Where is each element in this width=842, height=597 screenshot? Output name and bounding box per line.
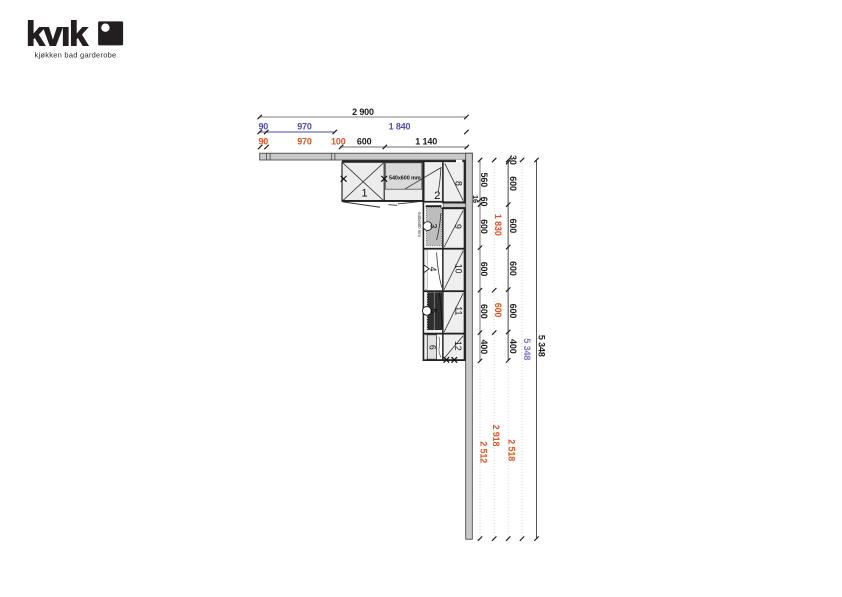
svg-text:600: 600 <box>508 176 518 191</box>
svg-text:600: 600 <box>508 304 518 319</box>
svg-text:2: 2 <box>434 190 440 202</box>
svg-text:600: 600 <box>357 136 372 146</box>
svg-text:30: 30 <box>508 155 518 165</box>
svg-text:970: 970 <box>297 136 312 146</box>
svg-text:600: 600 <box>508 261 518 276</box>
svg-text:540x600 mm: 540x600 mm <box>389 176 421 182</box>
svg-text:540x600 mm: 540x600 mm <box>417 212 422 237</box>
svg-text:560: 560 <box>479 173 489 188</box>
svg-text:90: 90 <box>258 136 268 146</box>
svg-text:kjøkken bad garderobe: kjøkken bad garderobe <box>35 50 117 59</box>
svg-text:600: 600 <box>479 219 489 234</box>
svg-text:2 918: 2 918 <box>491 425 501 447</box>
svg-text:400: 400 <box>508 339 518 354</box>
svg-text:9: 9 <box>453 224 463 229</box>
svg-text:1: 1 <box>361 188 367 200</box>
svg-text:400: 400 <box>479 340 489 355</box>
svg-text:3: 3 <box>429 224 439 229</box>
svg-text:100: 100 <box>331 136 346 146</box>
svg-text:12: 12 <box>453 341 463 351</box>
svg-text:11: 11 <box>453 306 463 315</box>
svg-text:1 140: 1 140 <box>415 136 437 146</box>
svg-text:kvık: kvık <box>26 16 88 54</box>
svg-text:10: 10 <box>453 264 463 274</box>
svg-text:2 900: 2 900 <box>352 107 374 117</box>
svg-text:4: 4 <box>428 267 438 272</box>
svg-text:8: 8 <box>453 181 463 186</box>
svg-text:600: 600 <box>508 219 518 234</box>
svg-text:5: 5 <box>429 308 439 313</box>
svg-text:90: 90 <box>258 122 268 132</box>
svg-text:1 840: 1 840 <box>389 122 411 132</box>
svg-text:2 512: 2 512 <box>479 441 489 463</box>
svg-text:600: 600 <box>493 303 503 318</box>
svg-text:600: 600 <box>479 304 489 319</box>
svg-text:5 348: 5 348 <box>536 335 546 357</box>
svg-text:970: 970 <box>297 122 312 132</box>
svg-text:1 830: 1 830 <box>493 214 503 236</box>
svg-text:5 348: 5 348 <box>522 338 532 360</box>
svg-text:6: 6 <box>427 345 437 350</box>
svg-text:600: 600 <box>479 262 489 277</box>
svg-text:16: 16 <box>471 195 480 203</box>
svg-text:2 518: 2 518 <box>507 439 517 461</box>
